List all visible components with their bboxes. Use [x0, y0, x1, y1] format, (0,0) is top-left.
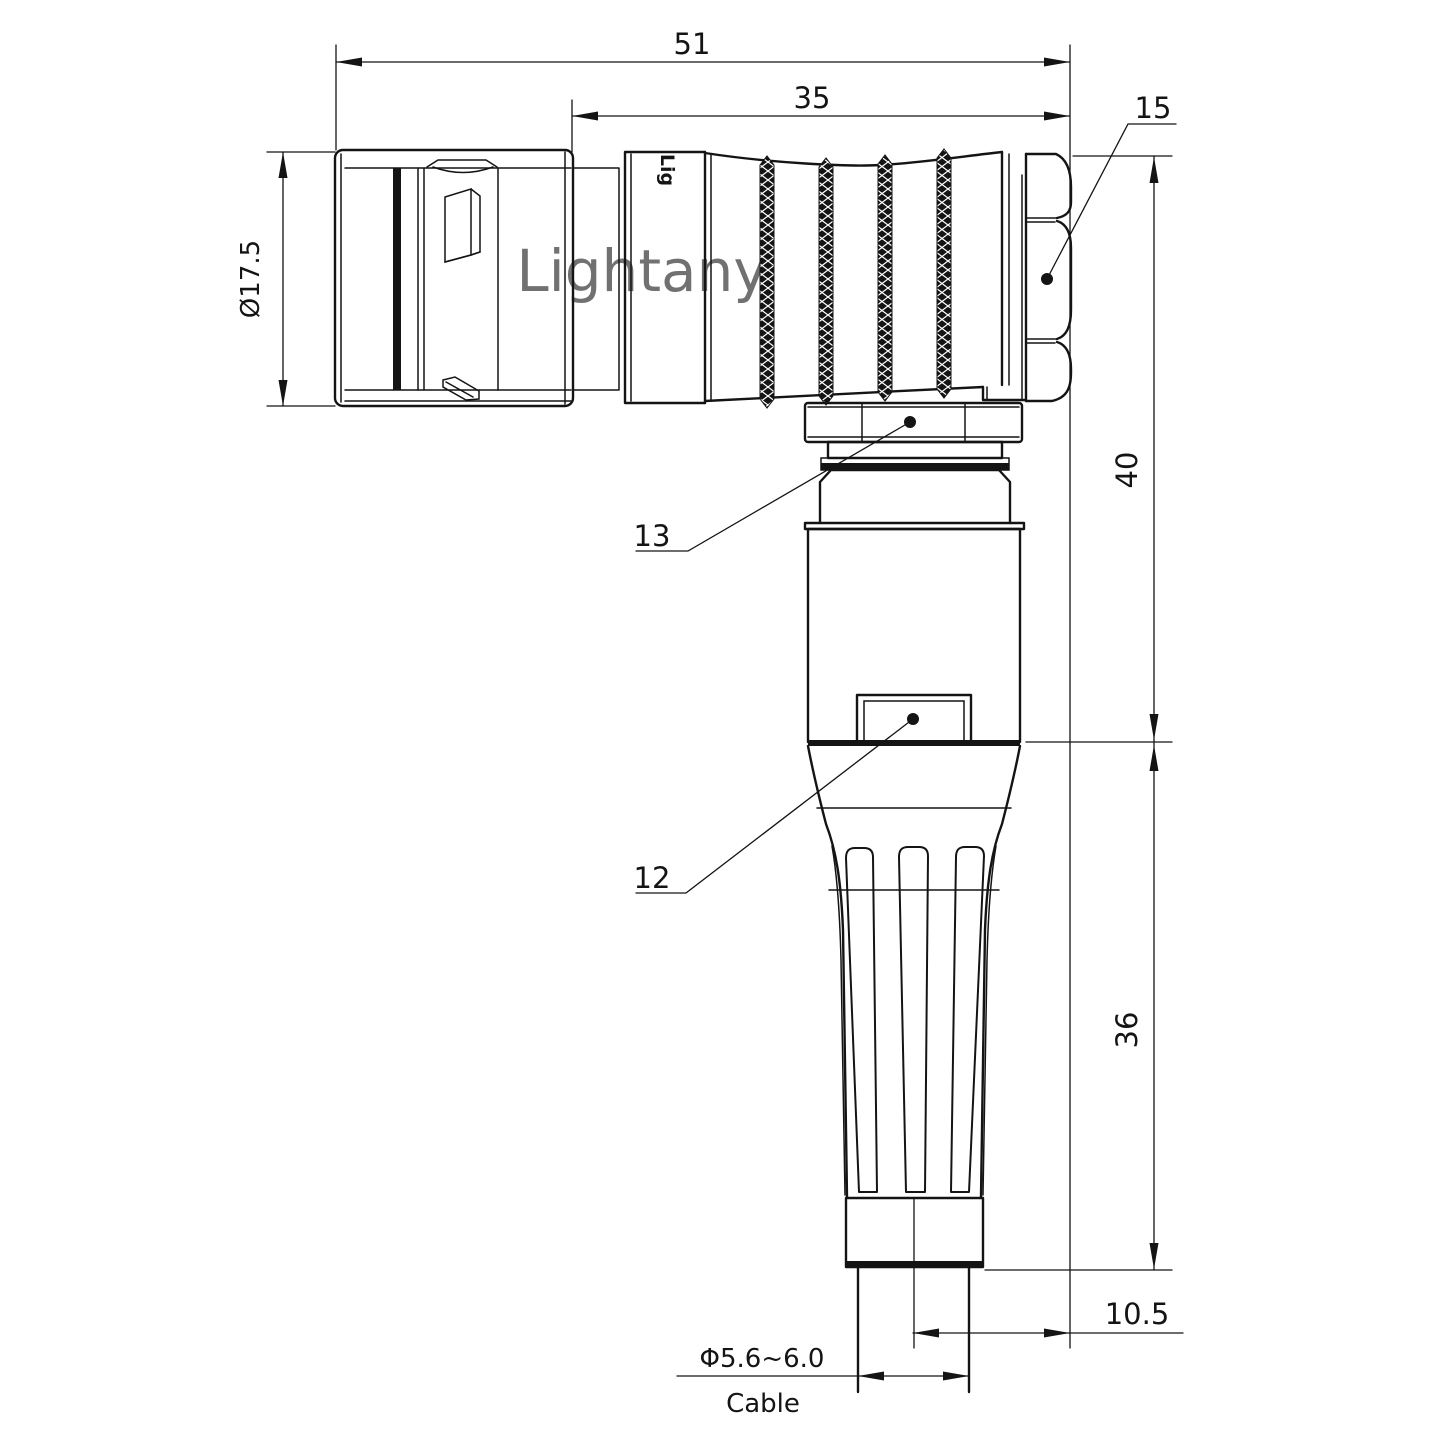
callout-15-label: 15: [1135, 91, 1172, 125]
dimension-shell-diameter: Ø17.5: [236, 152, 335, 406]
dimension-rear-length: 35: [572, 81, 1070, 152]
oring-band: [821, 458, 1009, 470]
dim-51-label: 51: [674, 27, 711, 61]
dim-36-label: 36: [1110, 1012, 1144, 1049]
flute-slot: [846, 848, 877, 1192]
connector-engineering-drawing: Lightany Lig: [0, 0, 1440, 1440]
dia-17-5-label: Ø17.5: [236, 240, 266, 318]
dimension-annotations: 51 35 Ø17.5 40: [236, 27, 1183, 1419]
cable-ferrule: [846, 1198, 983, 1348]
flute-slot: [951, 847, 984, 1192]
sleeve-bottom-tab: [443, 377, 479, 400]
dimension-upper-height: 40: [1026, 156, 1172, 742]
technical-drawing-page: Lightany Lig: [0, 0, 1440, 1440]
dim-35-label: 35: [794, 81, 831, 115]
dim-40-label: 40: [1110, 452, 1144, 489]
sleeve-band: [393, 168, 401, 390]
watermark-text: Lightany: [516, 237, 767, 305]
knurl-strip: [878, 155, 892, 401]
cable-diameter-label: Φ5.6~6.0: [700, 1344, 825, 1374]
knurl-strip: [937, 149, 951, 398]
flute-slot: [899, 847, 928, 1192]
collar: [828, 442, 1002, 458]
callout-hex-nut: 15: [1041, 91, 1176, 285]
upper-housing: [820, 470, 1010, 523]
dimension-lower-height: 36: [985, 742, 1172, 1270]
strain-relief-boot: [808, 746, 1020, 1197]
cable-label: Cable: [726, 1389, 800, 1419]
dimension-cable-diameter: Φ5.6~6.0 Cable: [677, 1344, 969, 1419]
dimension-overall-length: 51: [336, 27, 1070, 150]
dim-10-5-label: 10.5: [1105, 1297, 1170, 1331]
callout-13-label: 13: [634, 519, 671, 553]
elbow-lower-assembly: [805, 403, 1024, 1392]
dimension-cable-offset: 10.5: [913, 1297, 1183, 1338]
latch-window: [445, 189, 480, 262]
housing-body: [808, 529, 1020, 742]
shell-engraving-text: Lig: [656, 154, 678, 186]
knurl-strip: [760, 156, 774, 408]
sleeve-top-tab: [427, 160, 497, 167]
knurl-strip: [819, 158, 833, 405]
callout-12-label: 12: [634, 861, 671, 895]
